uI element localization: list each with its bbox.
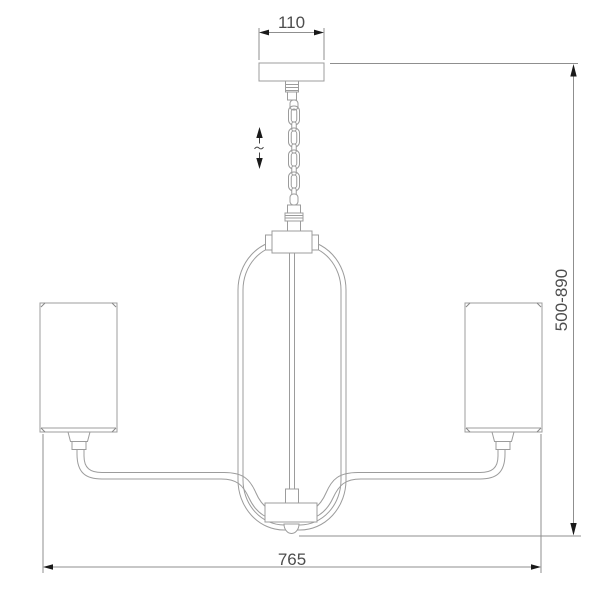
frame-loop-inner (243, 245, 341, 525)
chain-link-inner (291, 131, 297, 144)
connector-block (288, 205, 301, 213)
height-adjust-indicator (255, 127, 264, 169)
dim-arrow-up-icon (570, 64, 576, 77)
canopy-connector (286, 81, 299, 110)
shade-left (40, 303, 117, 450)
total-width-label: 765 (278, 550, 306, 569)
chandelier-dimension-drawing: 110 500-890 765 (0, 0, 600, 600)
connector-loop (290, 194, 298, 205)
chain-connector-link (292, 122, 297, 131)
shade-socket-cup (68, 432, 90, 442)
chain-link-inner (291, 153, 297, 166)
hub-connector (285, 194, 303, 231)
ceiling-canopy (259, 63, 324, 81)
bottom-plate (265, 503, 317, 522)
connector-threads (285, 213, 303, 221)
adjust-down-arrow-icon (256, 158, 262, 169)
hub-body (272, 231, 312, 253)
chain-link-inner (291, 109, 297, 122)
dim-arrow-left-icon (259, 30, 269, 36)
bottom-socket (286, 489, 299, 503)
finial (284, 524, 299, 534)
bottom-assembly (265, 489, 317, 534)
chain-connector-link (292, 166, 297, 175)
dimension-top: 110 (259, 13, 324, 60)
hub-left-tab (266, 235, 273, 250)
fixture (40, 63, 542, 534)
center-hub (266, 231, 319, 253)
shade-body (465, 303, 542, 432)
hub-right-tab (312, 235, 319, 250)
dim-arrow-down-icon (570, 523, 576, 536)
connector-block (288, 92, 297, 100)
left-arm-line (84, 449, 288, 515)
right-arm-line (294, 449, 498, 515)
shade-socket-block (496, 442, 510, 450)
adjust-up-arrow-icon (256, 127, 262, 138)
shade-socket-cup (492, 432, 514, 442)
shade-socket-block (72, 442, 86, 450)
height-range-label: 500-890 (552, 269, 571, 331)
chain-link-inner (291, 175, 297, 188)
shade-body (40, 303, 117, 432)
chain-connector-link (292, 144, 297, 153)
center-rod (290, 253, 295, 491)
diagram-canvas: 110 500-890 765 (0, 0, 600, 600)
dim-arrow-left-icon (43, 564, 53, 570)
dim-arrow-right-icon (314, 30, 324, 36)
chain (289, 106, 300, 197)
shade-right (465, 303, 542, 450)
dim-arrow-right-icon (531, 564, 541, 570)
left-arm-line (77, 449, 287, 521)
adjust-squiggle (255, 147, 264, 149)
canopy-width-label: 110 (278, 13, 305, 32)
right-arm-line (295, 449, 505, 521)
connector-stem (288, 221, 301, 231)
